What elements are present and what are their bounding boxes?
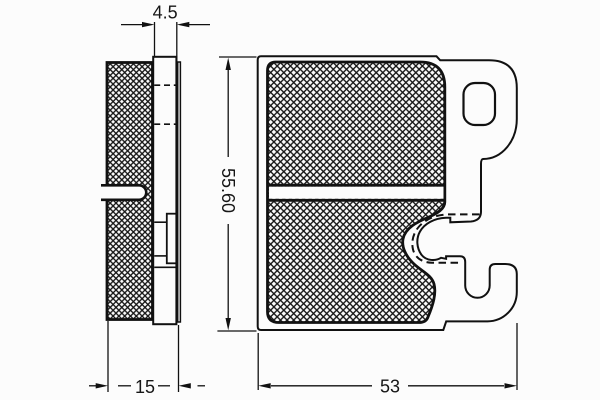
svg-text:55.60: 55.60 [218,168,238,213]
svg-text:15: 15 [135,377,155,397]
svg-text:53: 53 [380,377,400,397]
svg-text:4.5: 4.5 [153,3,178,23]
